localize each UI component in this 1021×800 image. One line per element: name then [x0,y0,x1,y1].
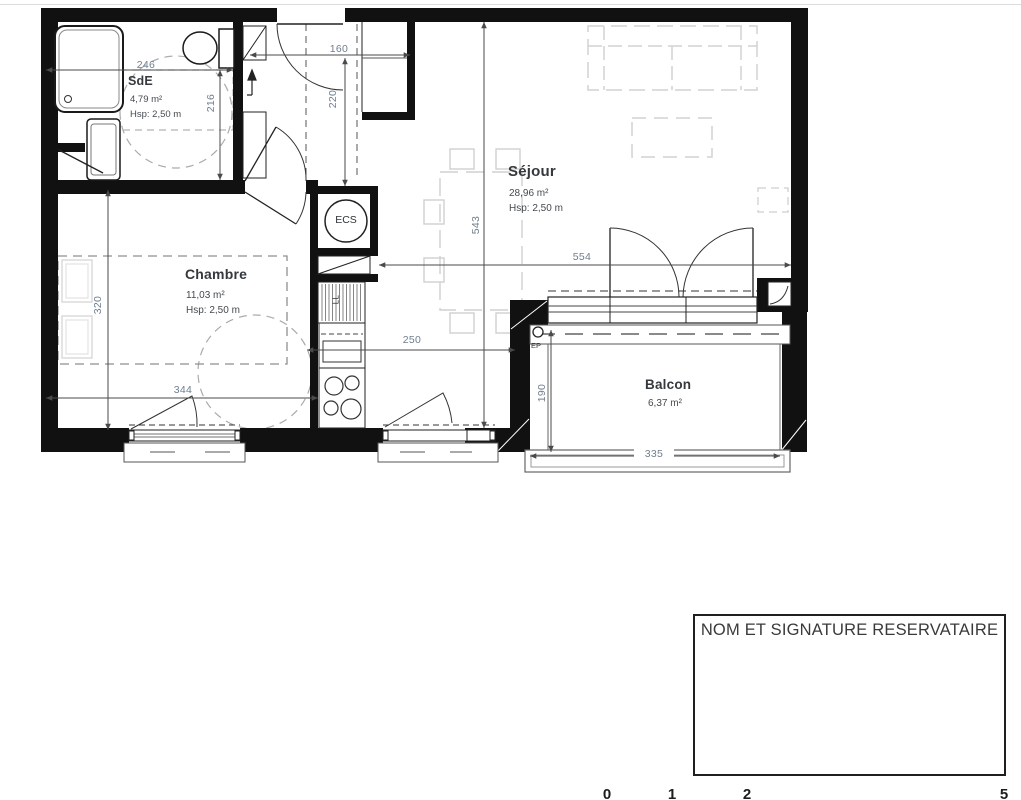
chambre-window [124,396,245,462]
dim-hall-depth: 220 [327,79,339,119]
signature-box-title: NOM ET SIGNATURE RESERVATAIRE [695,621,1004,640]
sejour-room-name: Séjour [508,163,556,180]
chambre-room-area: 11,03 m² [186,290,225,301]
washing-machine-label: LL [332,285,341,315]
balcon-room-name: Balcon [645,377,691,392]
hob [319,368,365,428]
kitchen-units [318,282,365,428]
sde-room-height: Hsp: 2,50 m [130,109,181,120]
window-swing [385,393,452,427]
sde-room-name: SdE [128,74,153,88]
window-swing [131,396,197,429]
sink-counter [319,323,365,368]
floor-plan-page: SdE 4,79 m² Hsp: 2,50 m Chambre 11,03 m²… [0,0,1021,800]
dim-sejour-depth: 543 [470,205,482,245]
scale-label-2: 2 [737,786,757,800]
dim-hall-width: 160 [319,43,359,55]
sde-room-area: 4,79 m² [130,94,162,105]
sejour-room-height: Hsp: 2,50 m [509,203,563,214]
furniture-sofa [588,26,757,90]
washbasin [87,119,120,180]
signature-box: NOM ET SIGNATURE RESERVATAIRE [693,614,1006,776]
dim-sde-width: 246 [126,59,166,71]
balcony-floor [548,344,780,450]
dim-balcon-depth: 190 [536,373,548,413]
dim-sde-depth: 216 [205,83,217,123]
right-wall-window [768,282,791,306]
scale-label-0: 0 [597,786,617,800]
shower-tray [55,26,123,112]
scale-label-1: 1 [662,786,682,800]
chambre-room-name: Chambre [185,266,247,282]
furniture-coffee-table [632,118,712,157]
sejour-room-area: 28,96 m² [509,188,548,199]
furniture-tv-unit [758,188,788,212]
dim-chambre-depth: 320 [92,285,104,325]
balcony-glazing [548,291,757,323]
washing-machine-hatch [322,284,361,321]
balcony-door-swings [610,228,753,297]
sejour-window [378,393,498,462]
cabinet-under-ecs [318,256,370,274]
rain-pipe-symbol [533,327,543,337]
balcon-room-area: 6,37 m² [648,398,682,409]
dim-chambre-width: 344 [163,384,203,396]
ecs-label: ECS [330,214,362,226]
balcony-sill [530,325,790,344]
dim-balcon-width: 335 [634,448,674,460]
hall-cabinets [243,26,266,178]
walls [41,8,808,452]
entry-closet [362,22,407,112]
chambre-room-height: Hsp: 2,50 m [186,305,240,316]
rain-pipe-label: EP [531,341,541,350]
entry-direction-arrow [247,70,256,95]
scale-label-5: 5 [994,786,1014,800]
dim-kitchen-width: 250 [392,334,432,346]
toilet [183,29,234,68]
dim-sejour-width: 554 [562,251,602,263]
